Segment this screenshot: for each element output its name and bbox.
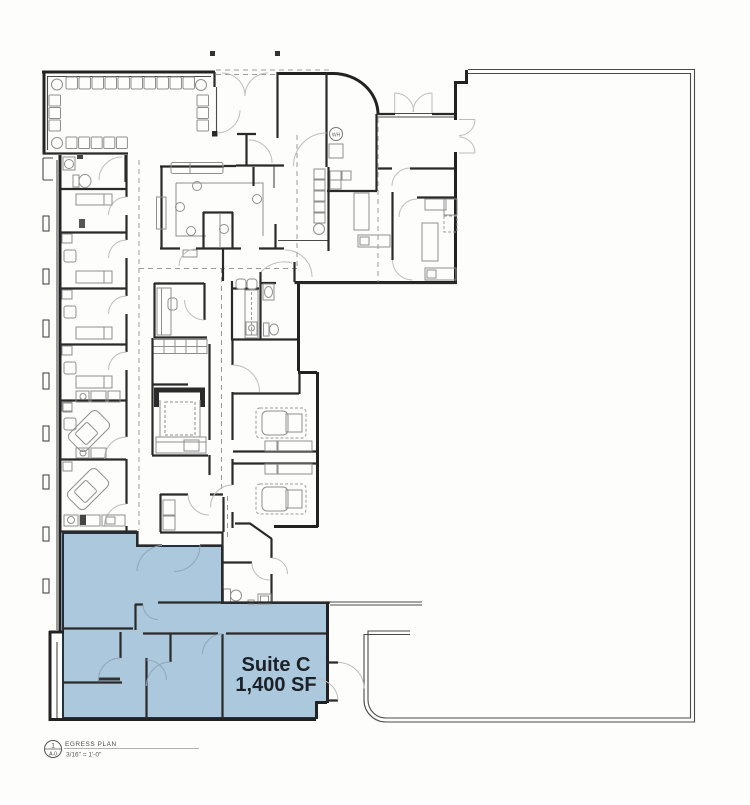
svg-text:3/16" = 1'-0": 3/16" = 1'-0" [66, 752, 102, 759]
svg-text:EGRESS PLAN: EGRESS PLAN [65, 741, 117, 748]
svg-text:1: 1 [51, 743, 55, 750]
svg-text:1,400 SF: 1,400 SF [235, 674, 316, 696]
svg-text:A-0: A-0 [49, 752, 57, 758]
svg-text:Suite C: Suite C [242, 654, 311, 676]
svg-text:WH: WH [332, 133, 341, 139]
